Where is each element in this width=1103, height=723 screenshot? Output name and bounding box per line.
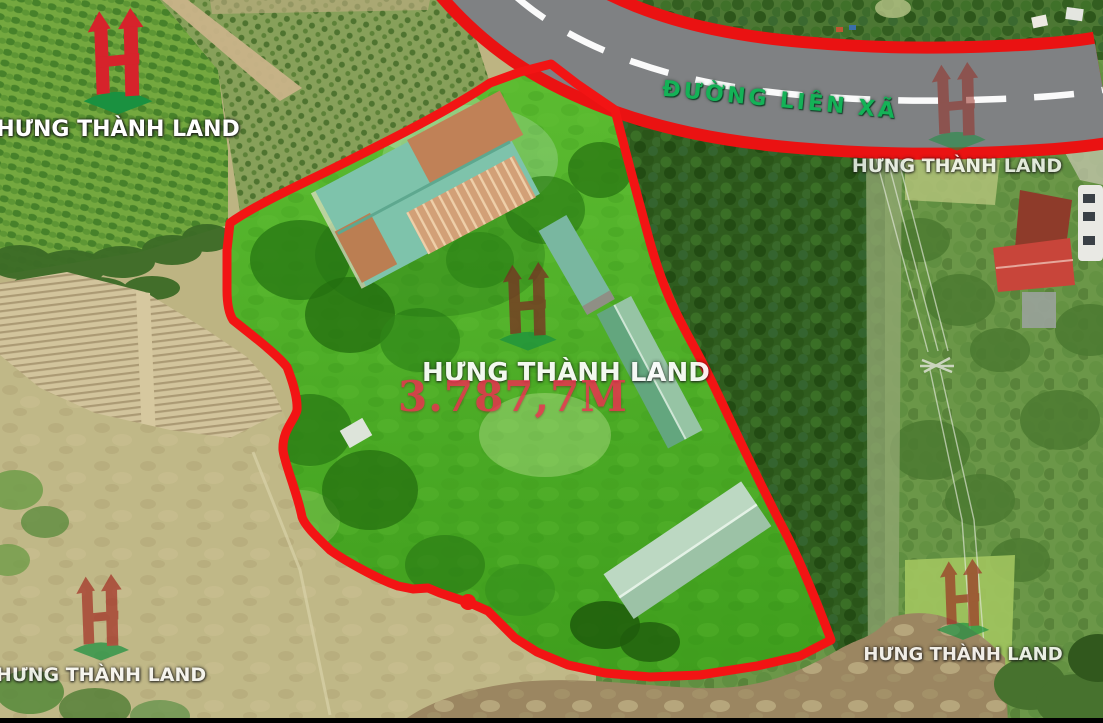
boundary-node — [460, 594, 476, 610]
letterbox-bar — [0, 718, 1103, 723]
area-measurement-label: 3.787,7M — [398, 372, 618, 421]
aerial-photo-listing: HƯNG THÀNH LAND HƯNG THÀNH LAND 3.787,7M… — [0, 0, 1103, 723]
forest-path — [866, 136, 902, 700]
white-building — [1078, 185, 1103, 261]
